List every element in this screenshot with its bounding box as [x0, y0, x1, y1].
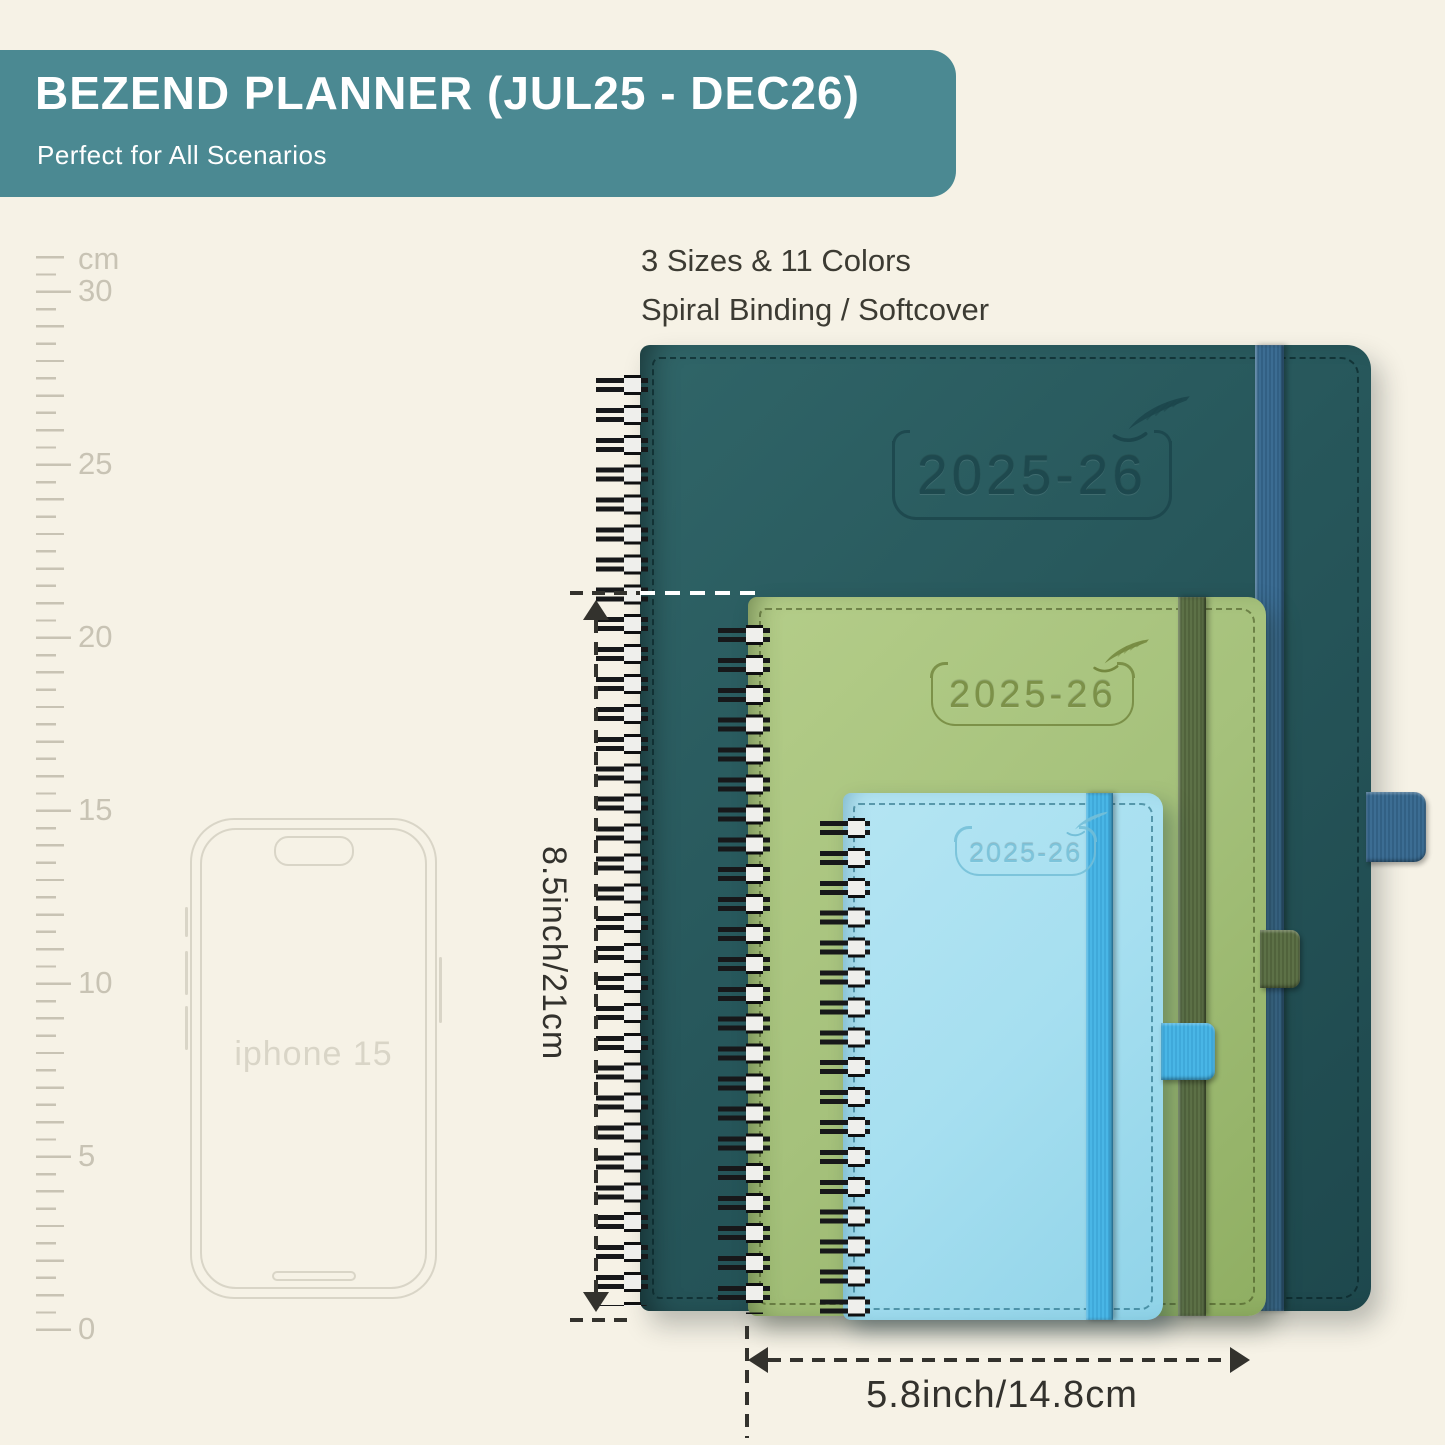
ruler-label-15: 15 [78, 793, 112, 827]
spiral-binding-medium [718, 622, 770, 1314]
planner-large-year-emboss: 2025-26 [892, 441, 1172, 520]
phone-side-button [439, 957, 442, 1023]
phone-mute-switch [185, 907, 188, 937]
height-marker-line-white [640, 591, 764, 595]
ruler-label-25: 25 [78, 447, 112, 481]
ruler-label-20: 20 [78, 620, 112, 654]
ruler: cm 30 25 20 15 10 5 0 [36, 256, 196, 1338]
ruler-unit-label: cm [78, 242, 119, 276]
width-arrow-left-icon [748, 1347, 768, 1373]
features-caption: 3 Sizes & 11 Colors Spiral Binding / Sof… [641, 236, 989, 334]
planner-large-pen-loop [1366, 792, 1426, 862]
page-title: BEZEND PLANNER (JUL25 - DEC26) [35, 66, 860, 120]
phone-dynamic-island [274, 836, 354, 866]
height-extension-line-bottom [570, 1318, 636, 1322]
year-label: 2025-26 [933, 673, 1132, 724]
planner-small-year-emboss: 2025-26 [955, 837, 1096, 876]
year-label: 2025-26 [957, 837, 1094, 874]
phone-outline: iphone 15 [190, 818, 437, 1299]
phone-volume-up-button [185, 951, 188, 995]
planner-medium-elastic-band [1178, 597, 1206, 1316]
year-frame: 2025-26 [931, 673, 1134, 726]
spiral-binding-large [596, 372, 648, 1306]
year-label: 2025-26 [895, 441, 1169, 517]
planner-small-pen-loop [1161, 1023, 1215, 1080]
features-line-binding: Spiral Binding / Softcover [641, 285, 989, 334]
width-arrow-right-icon [1230, 1347, 1250, 1373]
ruler-major-ticks [36, 256, 71, 1338]
ruler-label-30: 30 [78, 274, 112, 308]
year-frame: 2025-26 [955, 837, 1096, 876]
width-extension-line [745, 1326, 749, 1438]
page-subtitle: Perfect for All Scenarios [37, 140, 327, 171]
year-frame: 2025-26 [892, 441, 1172, 520]
height-dimension-label: 8.5inch/21cm [534, 846, 573, 1060]
phone-bottom-slot [272, 1271, 356, 1281]
width-dimension-label: 5.8inch/14.8cm [866, 1374, 1138, 1417]
planner-small-blue: 2025-26 [843, 793, 1163, 1320]
planner-medium-pen-loop [1260, 930, 1300, 988]
height-extension-line-top [570, 591, 640, 595]
ruler-label-0: 0 [78, 1312, 95, 1346]
width-dimension-line [768, 1358, 1238, 1362]
ruler-label-10: 10 [78, 966, 112, 1000]
planner-medium-year-emboss: 2025-26 [931, 673, 1134, 726]
height-dimension-line [594, 620, 598, 1294]
phone-volume-down-button [185, 1006, 188, 1050]
spiral-binding-small [820, 815, 870, 1317]
title-banner: BEZEND PLANNER (JUL25 - DEC26) Perfect f… [0, 50, 956, 197]
product-infographic: { "banner": { "title": "BEZEND PLANNER (… [0, 0, 1445, 1445]
phone-label: iphone 15 [192, 1035, 435, 1074]
features-line-sizes: 3 Sizes & 11 Colors [641, 236, 989, 285]
ruler-label-5: 5 [78, 1139, 95, 1173]
